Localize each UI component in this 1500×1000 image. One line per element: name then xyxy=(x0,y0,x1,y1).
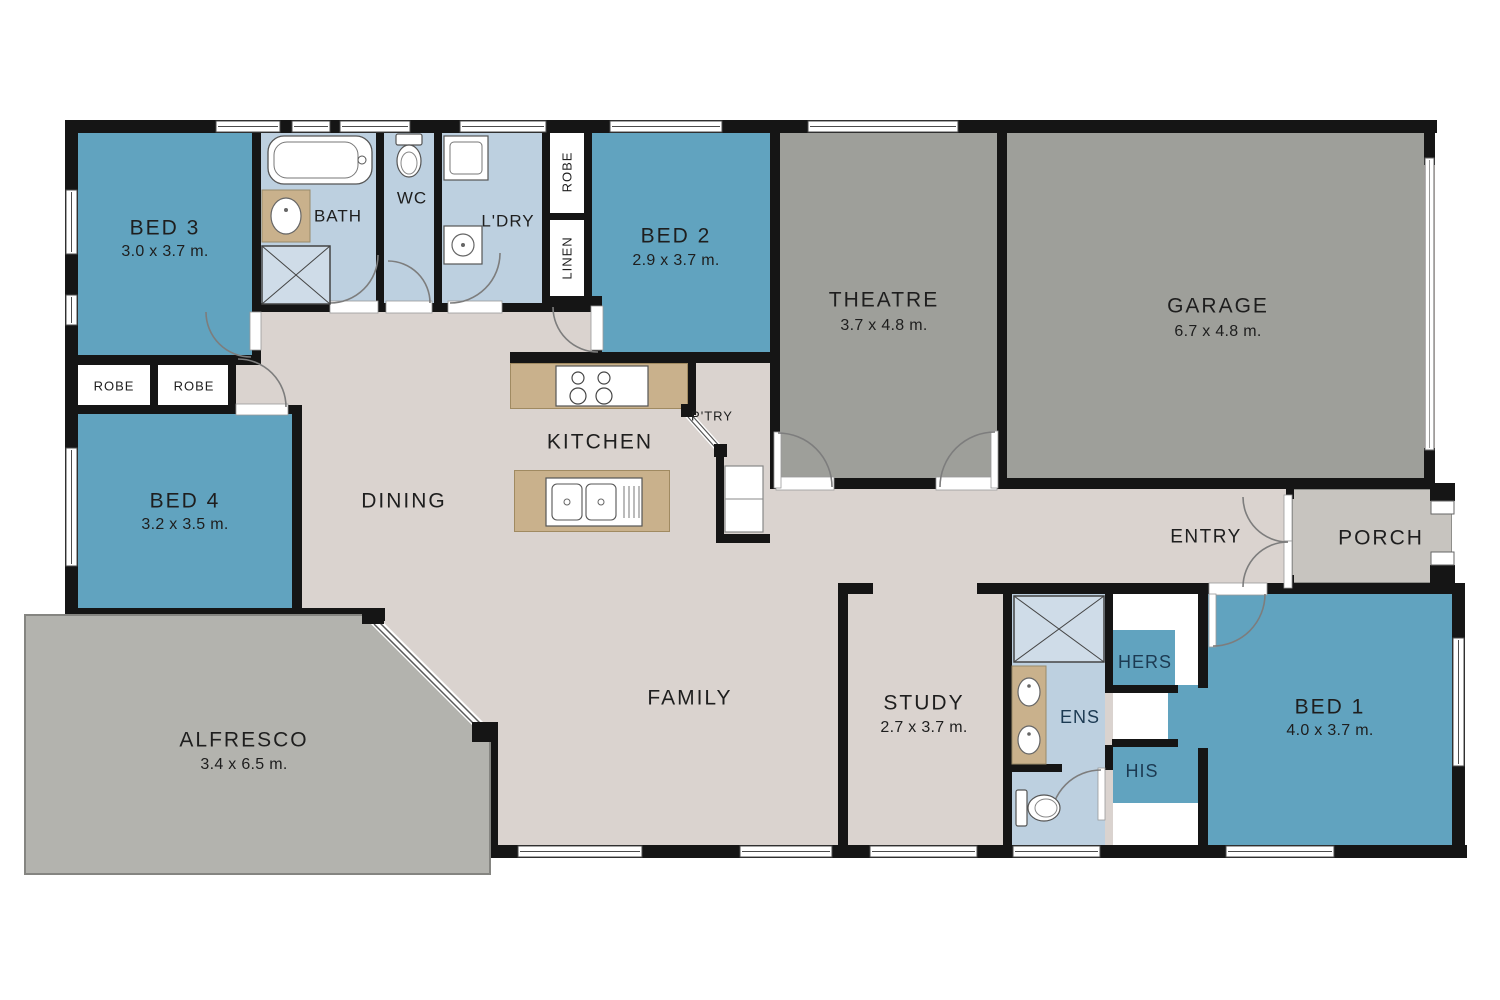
plan-graphics-overlay xyxy=(0,0,1500,1000)
room-dims-bed4: 3.2 x 3.5 m. xyxy=(141,517,228,533)
room-label-bed3: BED 3 xyxy=(130,218,201,239)
room-label-entry: ENTRY xyxy=(1170,528,1242,547)
ens-toilet xyxy=(1016,790,1060,826)
porch-steps xyxy=(1431,501,1454,565)
bath-vanity xyxy=(262,190,310,242)
room-dims-theatre: 3.7 x 4.8 m. xyxy=(840,318,927,334)
wc-toilet xyxy=(396,134,422,177)
room-dims-bed1: 4.0 x 3.7 m. xyxy=(1286,723,1373,739)
ens-shower xyxy=(1014,596,1104,662)
garage-door xyxy=(1425,158,1434,450)
room-label-bed2: BED 2 xyxy=(641,226,712,247)
room-label-family: FAMILY xyxy=(647,688,732,709)
room-label-bath: BATH xyxy=(314,208,362,225)
room-dims-study: 2.7 x 3.7 m. xyxy=(880,720,967,736)
bath-shower xyxy=(262,246,330,304)
laundry-tub xyxy=(444,226,482,264)
room-dims-garage: 6.7 x 4.8 m. xyxy=(1174,324,1261,340)
room-label-ldry: L'DRY xyxy=(481,213,534,230)
room-label-porch: PORCH xyxy=(1338,528,1424,549)
ens-vanity xyxy=(1012,666,1046,764)
room-label-kitchen: KITCHEN xyxy=(547,432,653,453)
room-dims-bed3: 3.0 x 3.7 m. xyxy=(121,244,208,260)
room-label-his: HIS xyxy=(1125,762,1158,780)
room-label-robe1: ROBE xyxy=(94,380,135,393)
room-label-theatre: THEATRE xyxy=(829,290,939,311)
room-label-robe-top: ROBE xyxy=(561,152,574,193)
floor-plan: BED 3 3.0 x 3.7 m. BATH WC L'DRY ROBE LI… xyxy=(0,0,1500,1000)
room-dims-alfresco: 3.4 x 6.5 m. xyxy=(200,757,287,773)
room-label-garage: GARAGE xyxy=(1167,296,1269,317)
room-dims-bed2: 2.9 x 3.7 m. xyxy=(632,253,719,269)
washing-machine xyxy=(444,136,488,180)
room-label-wc: WC xyxy=(397,190,427,207)
fridge-space xyxy=(725,466,763,532)
room-label-ens: ENS xyxy=(1060,708,1100,726)
room-label-bed4: BED 4 xyxy=(150,491,221,512)
room-label-hers: HERS xyxy=(1118,653,1172,671)
room-label-dining: DINING xyxy=(361,491,447,512)
room-label-ptry: P'TRY xyxy=(691,410,733,423)
room-label-alfresco: ALFRESCO xyxy=(179,730,308,751)
bathtub xyxy=(268,136,372,184)
room-label-robe2: ROBE xyxy=(174,380,215,393)
cooktop xyxy=(556,366,648,406)
room-label-study: STUDY xyxy=(883,693,964,714)
island-sink xyxy=(546,478,642,526)
room-label-bed1: BED 1 xyxy=(1295,697,1366,718)
room-label-linen: LINEN xyxy=(561,236,574,279)
